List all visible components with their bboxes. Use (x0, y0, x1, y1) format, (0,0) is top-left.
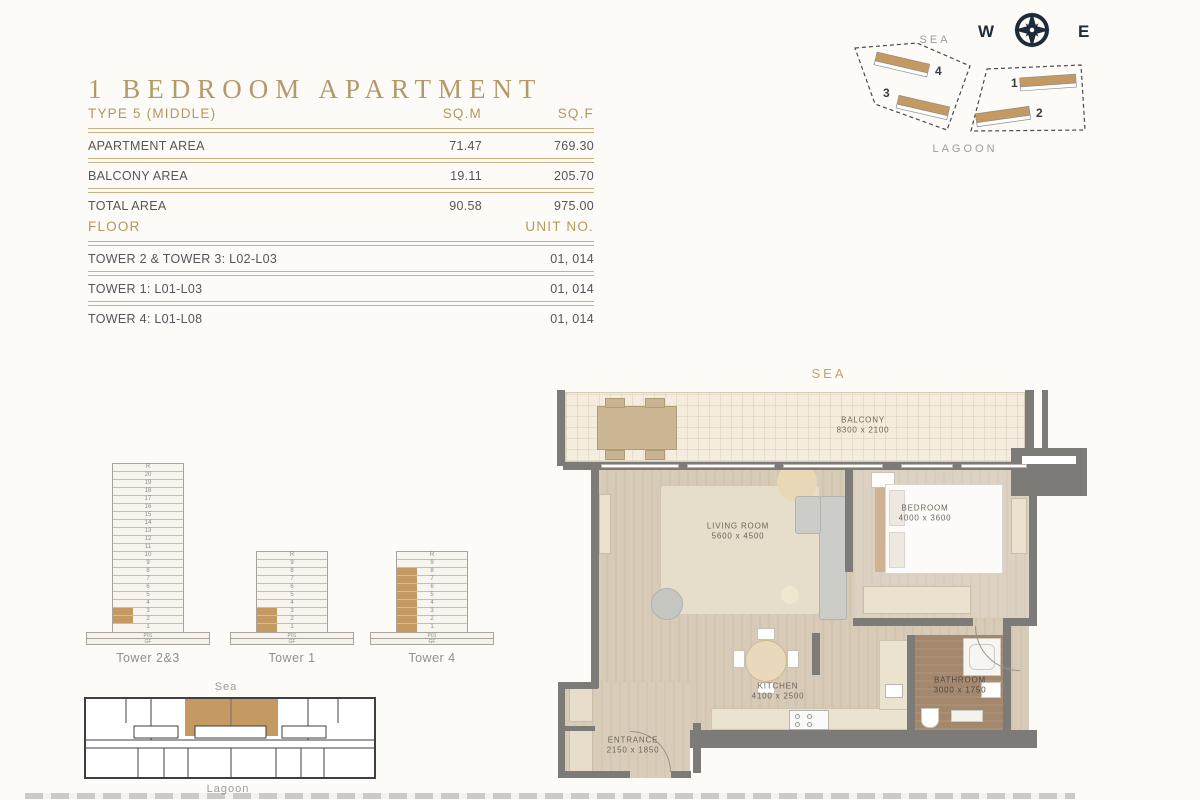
tower-floor-row: 9 (257, 560, 327, 568)
tower-floor-row: 20 (113, 472, 183, 480)
tower-floor-row: 1 (397, 624, 467, 632)
sofa-chaise (795, 496, 821, 534)
keyplan-sea-label: Sea (215, 681, 238, 693)
tower-floor-row: 14 (113, 520, 183, 528)
cropped-footer-strip (25, 793, 1075, 799)
wall (907, 635, 915, 730)
plan-sea-label: SEA (811, 366, 846, 381)
site-building-2 (975, 106, 1030, 126)
tower-label: Tower 4 (370, 651, 494, 665)
wall (1025, 390, 1034, 456)
site-parcel-sea (855, 43, 970, 130)
tower-floor-row: 11 (113, 544, 183, 552)
floor-col-unit: UNIT NO. (464, 219, 594, 234)
tower-floor-row: 3 (257, 608, 327, 616)
tower-floor-row: 16 (113, 504, 183, 512)
wall (671, 771, 691, 778)
wall-slot (1022, 456, 1076, 464)
wall (812, 633, 820, 675)
tower-podium: P01GF (86, 632, 210, 645)
tower-floor-row: 2 (257, 616, 327, 624)
tower-floor-row: R (113, 464, 183, 472)
tower-floor-row: 5 (397, 592, 467, 600)
keyplan-core (195, 726, 266, 738)
tower-floor-row: 4 (397, 600, 467, 608)
brochure-page: { "header": { "title": "1 BEDROOM APARTM… (0, 0, 1200, 800)
stove-burner (807, 722, 812, 727)
kitchen-chair (757, 628, 775, 640)
balcony-chair (605, 398, 625, 408)
area-row-sqm: 71.47 (387, 139, 482, 153)
room-label-bedroom: BEDROOM4000 x 3600 (899, 504, 952, 525)
tower-floors: R987654321 (396, 551, 468, 633)
wall (558, 771, 630, 778)
page-title: 1 BEDROOM APARTMENT (88, 74, 542, 105)
floor-row-unit: 01, 014 (464, 252, 594, 266)
area-table-row: TOTAL AREA90.58975.00 (88, 193, 594, 218)
area-col-type: TYPE 5 (MIDDLE) (88, 106, 387, 121)
tower-floor-row: 15 (113, 512, 183, 520)
tower-floor-row: 8 (397, 568, 467, 576)
tower-floor-row: 1 (257, 624, 327, 632)
room-label-bathroom: BATHROOM3000 x 1750 (934, 676, 987, 697)
balcony-chair (645, 398, 665, 408)
area-row-sqm: 19.11 (387, 169, 482, 183)
kitchen-table (745, 640, 787, 682)
area-col-sqf: SQ.F (482, 106, 594, 121)
tower-floor-row: 13 (113, 528, 183, 536)
tower-floor-row: 6 (397, 584, 467, 592)
tower-podium-row: GF (86, 638, 210, 645)
tower-podium-row: GF (370, 638, 494, 645)
floor-table-row: TOWER 4: L01-L0801, 014 (88, 306, 594, 331)
area-table-row: BALCONY AREA19.11205.70 (88, 163, 594, 188)
stove-burner (795, 722, 800, 727)
tower-floor-row: 8 (113, 568, 183, 576)
wall (1029, 496, 1037, 626)
floor-table-header: FLOOR UNIT NO. (88, 219, 594, 241)
tower-floor-row: R (257, 552, 327, 560)
dresser (863, 586, 971, 614)
tower-diagram-2-3: R2019181716151413121110987654321P01GFTow… (86, 463, 210, 665)
tower-floors: R987654321 (256, 551, 328, 633)
bathroom-bench (951, 710, 983, 722)
room-label-kitchen: KITCHEN4100 x 2500 (752, 682, 805, 703)
window (687, 464, 775, 468)
floor-row-unit: 01, 014 (464, 312, 594, 326)
room-label-entrance: ENTRANCE2150 x 1850 (607, 736, 660, 757)
area-row-label: APARTMENT AREA (88, 139, 387, 153)
kitchen-chair (787, 650, 799, 668)
key-plan: Sea Lagoon (76, 678, 382, 796)
wall (591, 470, 599, 688)
site-lagoon-label: LAGOON (932, 143, 997, 155)
entrance-closet (569, 684, 593, 722)
room-label-living: LIVING ROOM5600 x 4500 (707, 522, 769, 543)
entrance-closet (569, 730, 593, 772)
tower-floor-row: 4 (113, 600, 183, 608)
floor-table: FLOOR UNIT NO. TOWER 2 & TOWER 3: L02-L0… (88, 219, 594, 331)
floor-row-label: TOWER 2 & TOWER 3: L02-L03 (88, 252, 464, 266)
site-number-4: 4 (935, 64, 942, 78)
stove-burner (795, 714, 800, 719)
wall (565, 726, 595, 731)
tower-label: Tower 2&3 (86, 651, 210, 665)
tower-floor-row: 3 (113, 608, 183, 616)
window (601, 464, 679, 468)
wall (690, 730, 1037, 748)
wall (1003, 618, 1037, 626)
site-number-1: 1 (1011, 76, 1018, 90)
kitchen-chair (733, 650, 745, 668)
tower-floor-row: 7 (257, 576, 327, 584)
tower-floor-row: 7 (113, 576, 183, 584)
site-sea-label: SEA (919, 34, 950, 46)
toilet (921, 708, 939, 728)
wall (558, 682, 565, 778)
area-row-sqf: 205.70 (482, 169, 594, 183)
site-number-2: 2 (1036, 106, 1043, 120)
tower-floor-row: 2 (113, 616, 183, 624)
area-row-label: BALCONY AREA (88, 169, 387, 183)
tower-floor-row: 8 (257, 568, 327, 576)
wall (693, 723, 701, 773)
tower-diagram-4: R987654321P01GFTower 4 (370, 551, 494, 665)
tower-floor-row: 10 (113, 552, 183, 560)
stove (789, 710, 829, 730)
tower-podium: P01GF (370, 632, 494, 645)
window (961, 464, 1027, 468)
floor-table-row: TOWER 2 & TOWER 3: L02-L0301, 014 (88, 246, 594, 271)
tv-unit (599, 494, 611, 554)
balcony-dining-table (597, 406, 677, 450)
pillow (889, 532, 905, 568)
bed-headboard (875, 488, 885, 572)
area-col-sqm: SQ.M (387, 106, 482, 121)
tower-floor-row: 6 (113, 584, 183, 592)
window (783, 464, 883, 468)
tower-floor-row: 12 (113, 536, 183, 544)
tower-floor-row: 5 (257, 592, 327, 600)
wall (557, 390, 565, 466)
area-table-header: TYPE 5 (MIDDLE) SQ.M SQ.F (88, 106, 594, 128)
tower-floor-row: 3 (397, 608, 467, 616)
tower-floor-row: 9 (113, 560, 183, 568)
floor-row-unit: 01, 014 (464, 282, 594, 296)
tower-floor-row: 6 (257, 584, 327, 592)
tower-floors: R2019181716151413121110987654321 (112, 463, 184, 633)
site-building-1 (1020, 74, 1077, 91)
area-table-row: APARTMENT AREA71.47769.30 (88, 133, 594, 158)
area-table: TYPE 5 (MIDDLE) SQ.M SQ.F APARTMENT AREA… (88, 106, 594, 218)
tower-floor-row: 2 (397, 616, 467, 624)
area-row-sqf: 975.00 (482, 199, 594, 213)
floor-table-row: TOWER 1: L01-L0301, 014 (88, 276, 594, 301)
tower-floor-row: 4 (257, 600, 327, 608)
wall (1042, 390, 1048, 450)
tower-floor-row: 5 (113, 592, 183, 600)
bedroom-closet (1011, 498, 1027, 554)
tower-floor-row: 9 (397, 560, 467, 568)
tower-floor-row: R (397, 552, 467, 560)
site-building-3 (896, 95, 950, 119)
tower-floor-row: 19 (113, 480, 183, 488)
floor-row-label: TOWER 1: L01-L03 (88, 282, 464, 296)
tower-label: Tower 1 (230, 651, 354, 665)
site-number-3: 3 (883, 86, 890, 100)
tower-diagram-1: R987654321P01GFTower 1 (230, 551, 354, 665)
floor-lamp (781, 586, 799, 604)
wall (853, 618, 973, 626)
floor-row-label: TOWER 4: L01-L08 (88, 312, 464, 326)
kitchen-counter-right (879, 640, 909, 710)
tower-floor-row: 17 (113, 496, 183, 504)
window (901, 464, 953, 468)
tower-podium: P01GF (230, 632, 354, 645)
area-row-sqf: 769.30 (482, 139, 594, 153)
floor-plan: SEA BALCONY8 (533, 390, 1093, 792)
area-row-label: TOTAL AREA (88, 199, 387, 213)
balcony-chair (645, 450, 665, 460)
stove-burner (807, 714, 812, 719)
sofa (819, 496, 847, 620)
balcony-chair (605, 450, 625, 460)
pouf (651, 588, 683, 620)
tower-podium-row: GF (230, 638, 354, 645)
tower-floor-row: 18 (113, 488, 183, 496)
tower-floor-row: 1 (113, 624, 183, 632)
tower-floor-row: 7 (397, 576, 467, 584)
site-plan: SEA 4 3 1 2 LAGOON (835, 25, 1097, 165)
wall (845, 470, 853, 572)
kitchen-sink (885, 684, 903, 698)
site-building-4 (874, 52, 930, 77)
area-row-sqm: 90.58 (387, 199, 482, 213)
floor-col-floor: FLOOR (88, 219, 464, 234)
room-label-balcony: BALCONY8300 x 2100 (837, 416, 890, 437)
